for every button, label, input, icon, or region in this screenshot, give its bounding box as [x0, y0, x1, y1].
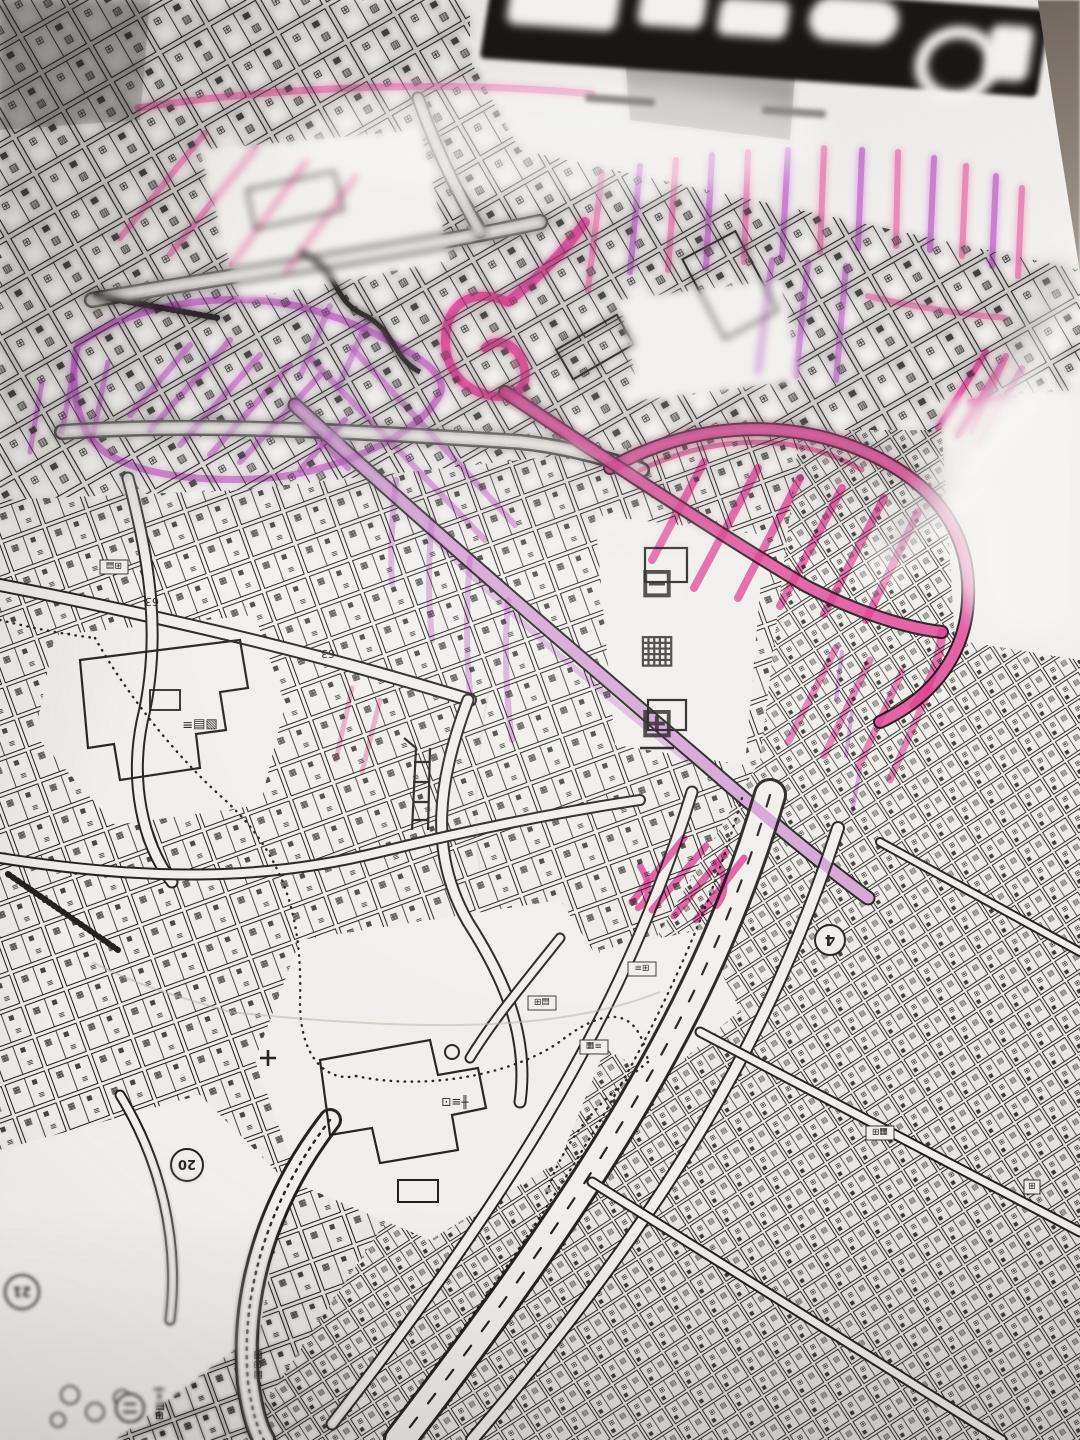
- buildings: [51, 171, 778, 1427]
- facility-label: ▧▤≡: [182, 717, 217, 732]
- street-label: ▦⊞: [872, 1126, 888, 1136]
- street-label-box: ⊞▤: [100, 560, 128, 574]
- out-of-focus-corner-layer: [0, 0, 1080, 1440]
- city-block-patterns: [0, 0, 1080, 1440]
- map-title-block: [480, 0, 1050, 97]
- fine-print: [585, 94, 655, 107]
- boundary-dotted-lines: [0, 296, 648, 1196]
- school-label: ╫≡⊡: [441, 1095, 469, 1110]
- large-place-name-glyph: ▦: [638, 631, 676, 677]
- cross-icon: [260, 1050, 276, 1066]
- stop-badge-20: 20: [171, 1149, 203, 1181]
- street-label: ⊞: [1028, 1180, 1036, 1190]
- title-glyph-blob: [636, 0, 708, 30]
- out-of-focus-top-layer: [0, 0, 1080, 1440]
- route-number: 4: [825, 931, 835, 949]
- stop-number: 20: [178, 1156, 196, 1171]
- title-glyph-blob: [983, 24, 1036, 83]
- fine-print: [762, 106, 826, 118]
- large-place-name-glyph: ⊞: [640, 701, 674, 747]
- photo-of-paper-map: ⊞ ▤ ▦ ≡ ⊞ ▨: [0, 0, 1080, 1440]
- street-label-column: ⊞▤≡╫: [153, 1385, 166, 1420]
- route-badge-4: 4: [815, 925, 845, 955]
- street-label-box: ⊞≡: [628, 962, 656, 976]
- large-place-name-glyph: ⊟: [640, 561, 674, 607]
- roads: [0, 98, 1080, 1440]
- street-label-box: ≡▦: [580, 1040, 608, 1054]
- title-glyph-blob: [715, 0, 791, 39]
- title-glyph-blob: [505, 0, 622, 32]
- stop-badge-21: 21: [5, 1275, 39, 1309]
- street-label: ≡▦: [586, 1040, 602, 1050]
- title-glyph-blob: [806, 0, 903, 45]
- street-label-box: ⊞: [1024, 1180, 1040, 1194]
- street-label-box: ▦⊞: [866, 1126, 894, 1140]
- street-label: ⊞▤: [106, 560, 122, 570]
- trees: [51, 1386, 130, 1427]
- street-label-box: ▤⊞: [528, 996, 556, 1010]
- map-labels: 63 63 ⊟ ▦ ⊞ ╫≡⊡ ▧▤≡ ⊞▤ ▤⊞ ≡▦: [5, 560, 1040, 1422]
- marker-annotations: [30, 86, 1022, 920]
- paper-curl-sheen: [0, 0, 1080, 1440]
- open-areas: [0, 130, 1080, 1440]
- block-number-label: 63: [145, 595, 159, 608]
- block-number-label: 63: [321, 647, 335, 660]
- map-sheet: 63 63 ⊟ ▦ ⊞ ╫≡⊡ ▧▤≡ ⊞▤ ▤⊞ ≡▦: [0, 0, 1080, 1440]
- street-label-column: ▤⊞▦: [253, 1350, 264, 1380]
- street-label: ▤⊞: [534, 996, 550, 1006]
- pencil-marks: [92, 640, 660, 1025]
- unreadable-badge: [116, 1394, 144, 1422]
- photo-vignette: [0, 0, 1080, 1440]
- tower-icon: [404, 738, 430, 830]
- street-label: ⊞≡: [634, 962, 649, 972]
- stop-number: 21: [13, 1283, 31, 1298]
- map-base-layer: ⊞ ▤ ▦ ≡ ⊞ ▨: [0, 0, 1080, 1440]
